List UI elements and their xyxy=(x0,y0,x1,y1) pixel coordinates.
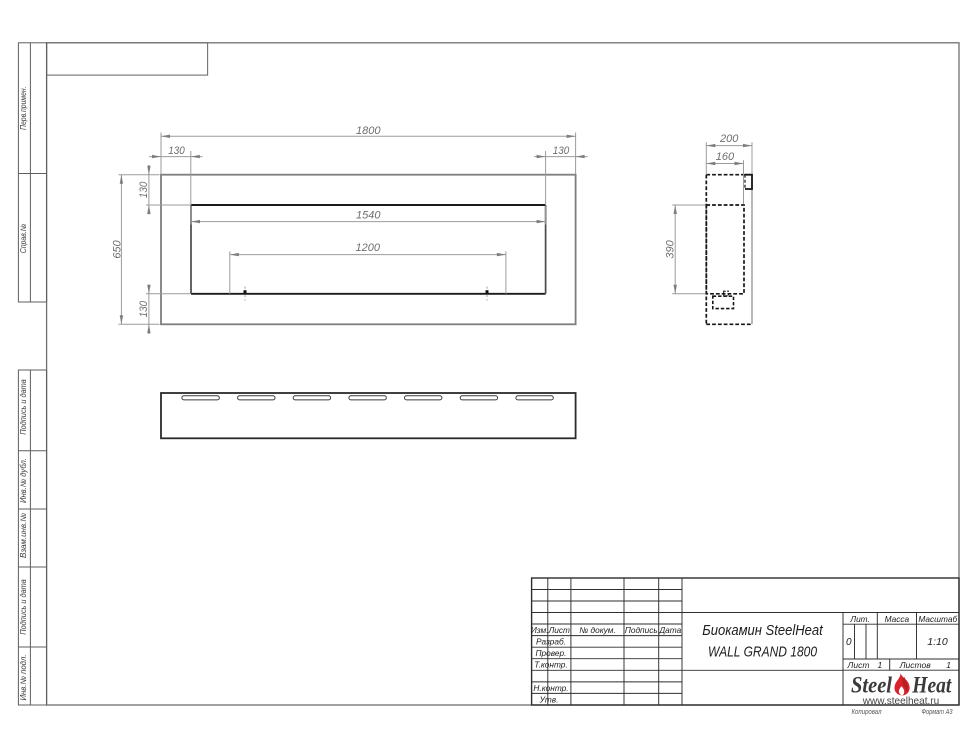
svg-text:Масштаб: Масштаб xyxy=(918,614,957,624)
svg-text:650: 650 xyxy=(111,239,123,258)
svg-text:www.steelheat.ru: www.steelheat.ru xyxy=(862,696,940,707)
svg-text:130: 130 xyxy=(138,181,150,198)
svg-text:WALL GRAND 1800: WALL GRAND 1800 xyxy=(708,645,818,661)
svg-text:Дата: Дата xyxy=(658,625,681,635)
svg-text:Т.контр.: Т.контр. xyxy=(534,660,567,670)
svg-text:Листов: Листов xyxy=(899,660,932,670)
svg-text:Биокамин SteelHeat: Биокамин SteelHeat xyxy=(702,623,823,639)
svg-text:Подпись и дата: Подпись и дата xyxy=(19,579,28,635)
svg-text:Heat: Heat xyxy=(911,672,951,697)
svg-text:Справ.№: Справ.№ xyxy=(19,223,28,253)
svg-text:№ докум.: № докум. xyxy=(579,625,616,635)
svg-text:Формат А3: Формат А3 xyxy=(922,707,954,716)
svg-text:130: 130 xyxy=(553,145,570,157)
svg-text:Провер.: Провер. xyxy=(536,648,567,658)
svg-text:Разраб.: Разраб. xyxy=(536,637,566,647)
svg-text:Взам.инв.№: Взам.инв.№ xyxy=(19,513,28,558)
svg-text:Лит.: Лит. xyxy=(849,614,869,624)
svg-text:200: 200 xyxy=(719,133,739,145)
svg-text:Перв.примен.: Перв.примен. xyxy=(19,86,28,130)
svg-text:Утв.: Утв. xyxy=(539,694,559,704)
svg-text:1: 1 xyxy=(946,660,951,670)
svg-text:Инв.№ дубл.: Инв.№ дубл. xyxy=(19,458,28,503)
svg-text:Подпись и дата: Подпись и дата xyxy=(19,379,28,435)
svg-text:160: 160 xyxy=(716,151,735,163)
svg-text:Инв.№ подл.: Инв.№ подл. xyxy=(19,655,28,701)
svg-text:Steel: Steel xyxy=(851,672,893,697)
svg-text:Подпись: Подпись xyxy=(625,625,658,635)
svg-text:Лист: Лист xyxy=(847,660,870,670)
svg-text:Копировал: Копировал xyxy=(852,707,883,716)
svg-text:Изм.: Изм. xyxy=(531,625,549,635)
svg-text:390: 390 xyxy=(664,239,676,258)
svg-text:130: 130 xyxy=(168,145,185,157)
svg-text:1: 1 xyxy=(878,660,883,670)
svg-text:Н.контр.: Н.контр. xyxy=(533,683,568,693)
svg-text:130: 130 xyxy=(138,300,150,317)
svg-text:Масса: Масса xyxy=(885,614,910,624)
svg-text:1200: 1200 xyxy=(356,242,381,254)
svg-text:Лист: Лист xyxy=(548,625,570,635)
svg-text:1:10: 1:10 xyxy=(927,636,948,648)
svg-text:1800: 1800 xyxy=(356,125,381,137)
svg-text:0: 0 xyxy=(846,637,852,648)
svg-text:1540: 1540 xyxy=(356,209,381,221)
